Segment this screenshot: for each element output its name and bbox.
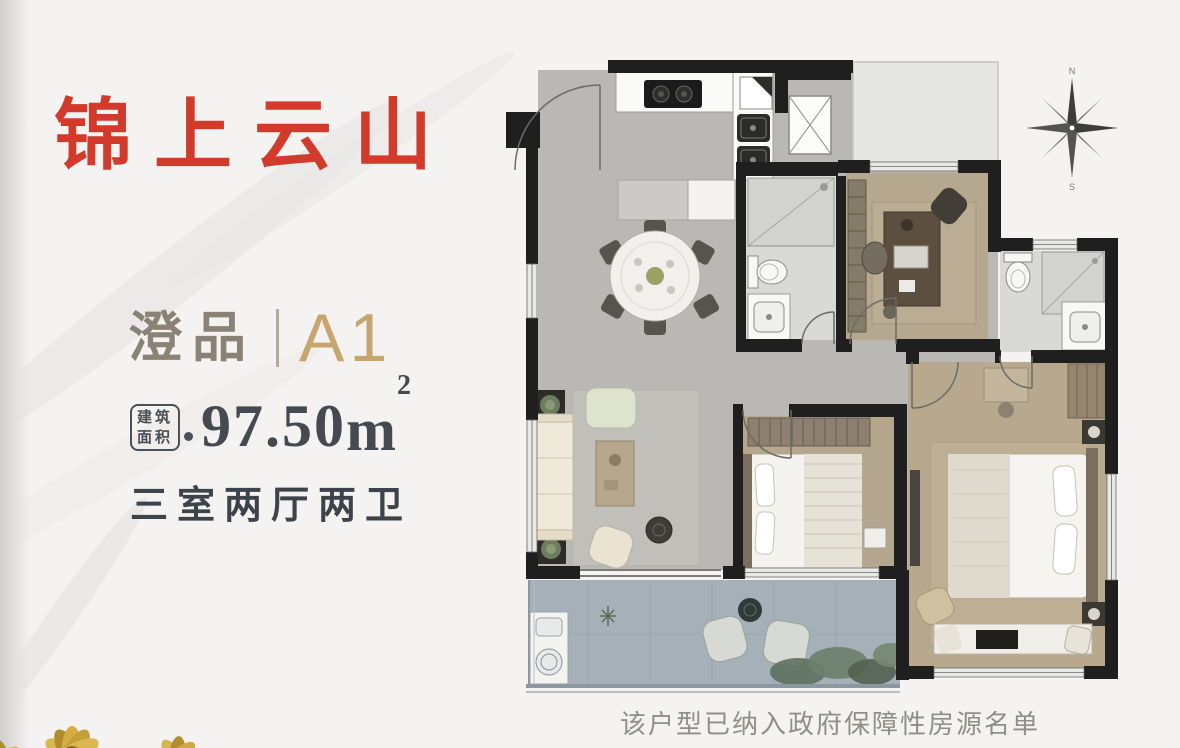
desk-chair [862, 242, 888, 274]
washing-machine [536, 649, 562, 675]
area-label-line2: 面积 [137, 429, 173, 446]
pillow [755, 464, 775, 507]
balcony-railing [526, 684, 900, 688]
area-label-box: 建筑 面积 [130, 404, 180, 451]
area-value: 97.50 [201, 396, 346, 456]
rooms-layout-label: 三室两厅两卫 [130, 474, 412, 529]
ac-platform [853, 62, 998, 170]
area-bullet-dot [184, 432, 193, 441]
armchair-green [586, 388, 636, 428]
left-edge-shadow-strip [0, 0, 30, 748]
side-table [864, 528, 886, 548]
gold-flower-decoration [0, 698, 282, 748]
unit-series-row: 澄品 A1 [128, 304, 392, 372]
area-unit: m [346, 396, 396, 465]
duct-shaft [789, 96, 831, 154]
area-unit-superscript: 2 [397, 370, 411, 402]
unit-model: A1 [299, 304, 392, 372]
compass-north-label: N [1069, 66, 1076, 76]
poster: 锦上云山 澄品 A1 建筑 面积 97.50 m 2 三室两厅两卫 [0, 0, 1180, 748]
tv-console [910, 470, 920, 566]
headboard [1086, 448, 1098, 602]
toilet [757, 260, 787, 284]
footer-note: 该户型已纳入政府保障性房源名单 [560, 704, 1100, 741]
headboard [743, 454, 752, 568]
series-name: 澄品 [128, 311, 256, 365]
pillow [1052, 523, 1077, 574]
wardrobe [748, 418, 870, 446]
coffee-table [596, 441, 634, 506]
compass-south-label: S [1069, 182, 1075, 192]
kitchen-cabinet [618, 180, 688, 220]
area-row: 建筑 面积 97.50 m 2 [130, 396, 410, 465]
pillow [755, 512, 775, 555]
pillow [1052, 465, 1077, 516]
kitchen-counter-low [688, 180, 735, 220]
dresser [984, 368, 1028, 402]
series-divider [276, 309, 279, 367]
compass-icon: N S [1022, 64, 1122, 192]
area-label-line1: 建筑 [137, 409, 173, 426]
balcony-table [738, 598, 762, 622]
round-stool [646, 517, 672, 543]
living-room [531, 388, 700, 571]
project-title: 锦上云山 [54, 96, 454, 174]
